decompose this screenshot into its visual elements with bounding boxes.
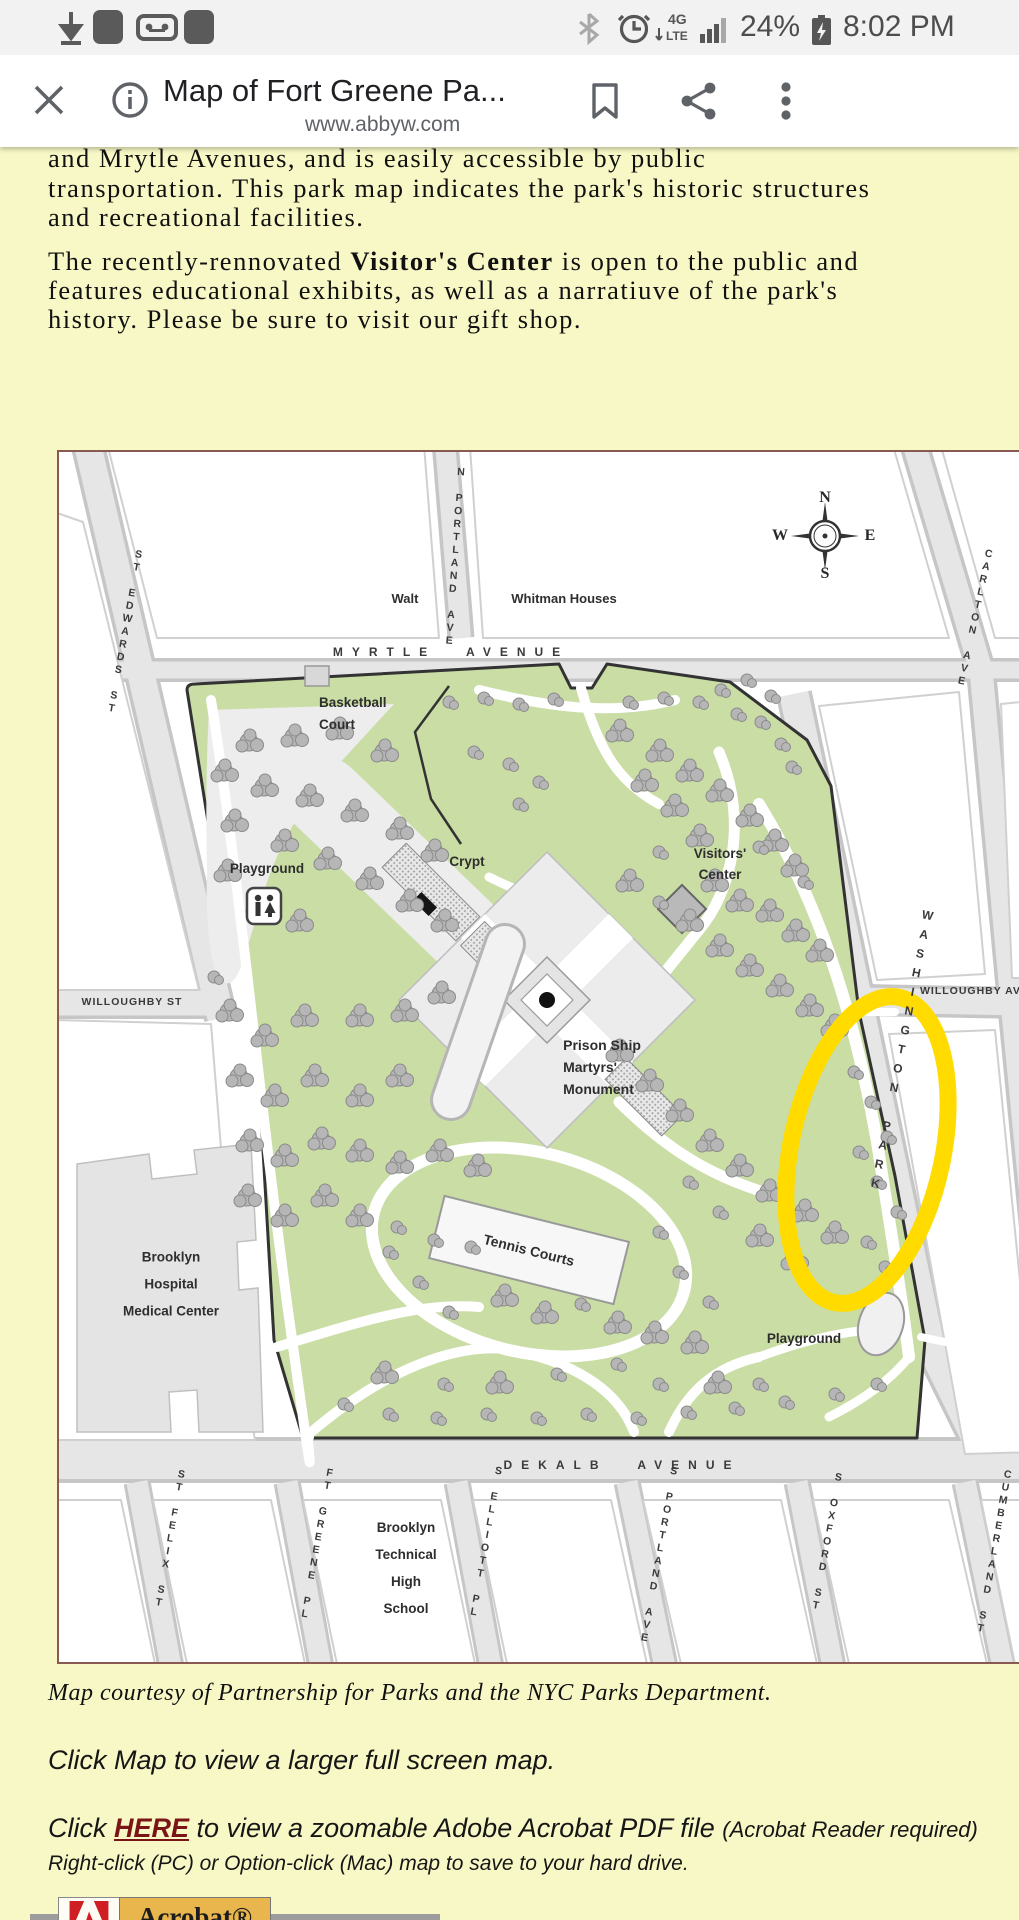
school-line3: High — [375, 1568, 436, 1595]
restroom-icon — [247, 888, 281, 924]
download-icon — [61, 12, 81, 43]
notification-square-icon — [93, 10, 123, 44]
visitors-center-bold: Visitor's Center — [350, 246, 553, 276]
svg-text:LTE: LTE — [666, 29, 688, 43]
adobe-logo-icon — [58, 1897, 119, 1920]
label-whitman-houses: Whitman Houses — [511, 588, 616, 610]
click-here-caption: Click HERE to view a zoomable Adobe Acro… — [48, 1813, 978, 1844]
here-pre: Click — [48, 1813, 114, 1843]
school-line4: School — [375, 1595, 436, 1622]
acrobat-wordmark: Acrobat® — [119, 1897, 271, 1920]
right-click-caption: Right-click (PC) or Option-click (Mac) m… — [48, 1852, 689, 1876]
paragraph1-line2: transportation. This park map indicates … — [48, 173, 870, 204]
street-willoughby-ave: WILLOUGHBY AVE — [920, 985, 1019, 997]
clock-time: 8:02 PM — [843, 10, 955, 44]
hospital-line1: Brooklyn — [123, 1244, 219, 1271]
browser-header: Map of Fort Greene Pa... www.abbyw.com — [0, 55, 1019, 147]
basketball-line2: Court — [319, 714, 387, 736]
visitors-line2: Center — [694, 864, 746, 885]
phone-screen: 4G LTE 24% 8:02 PM — [0, 0, 1019, 1920]
page-url: www.abbyw.com — [305, 113, 460, 137]
battery-percent: 24% — [740, 10, 800, 44]
hospital-line2: Hospital — [123, 1271, 219, 1298]
page-title: Map of Fort Greene Pa... — [163, 73, 506, 109]
visitors-line1: Visitors' — [694, 843, 746, 864]
hospital-line3: Medical Center — [123, 1298, 219, 1325]
school-line2: Technical — [375, 1541, 436, 1568]
monument-line1: Prison Ship — [563, 1034, 641, 1056]
label-monument: Prison Ship Martyrs' Monument — [563, 1034, 641, 1100]
monument-line3: Monument — [563, 1078, 641, 1100]
compass-s: S — [821, 565, 830, 583]
p2-post: is open to the public and — [554, 246, 859, 276]
paragraph1-line3: and recreational facilities. — [48, 202, 364, 233]
acrobat-note: (Acrobat Reader required) — [722, 1817, 978, 1842]
paragraph2-line3: history. Please be sure to visit our gif… — [48, 304, 582, 335]
label-crypt: Crypt — [449, 851, 484, 873]
here-link[interactable]: HERE — [114, 1813, 189, 1843]
compass-n: N — [819, 489, 831, 507]
click-map-caption: Click Map to view a larger full screen m… — [48, 1745, 555, 1776]
voicemail-icon — [138, 16, 176, 39]
here-post: to view a zoomable Adobe Acrobat PDF fil… — [189, 1813, 722, 1843]
web-page: and Mrytle Avenues, and is easily access… — [0, 147, 1019, 1920]
status-bar: 4G LTE 24% 8:02 PM — [0, 0, 1019, 55]
close-icon[interactable] — [32, 83, 66, 117]
label-walt: Walt — [392, 588, 419, 610]
label-playground-se: Playground — [767, 1328, 841, 1350]
svg-text:4G: 4G — [668, 11, 687, 27]
paragraph2-line1: The recently-rennovated Visitor's Center… — [48, 246, 859, 277]
bluetooth-icon — [580, 14, 597, 42]
street-myrtle: MYRTLE AVENUE — [333, 645, 569, 659]
signal-icon — [700, 18, 726, 43]
basketball-line1: Basketball — [319, 692, 387, 714]
compass-w: W — [772, 527, 788, 545]
paragraph2-line2: features educational exhibits, as well a… — [48, 275, 838, 306]
p2-pre: The recently-rennovated — [48, 246, 350, 276]
monument-line2: Martyrs' — [563, 1056, 641, 1078]
label-hospital: Brooklyn Hospital Medical Center — [123, 1244, 219, 1325]
paragraph1-line1: and Mrytle Avenues, and is easily access… — [48, 147, 706, 174]
bookmark-icon[interactable] — [589, 81, 621, 121]
street-dekalb: DEKALB AVENUE — [503, 1458, 740, 1472]
info-icon[interactable] — [110, 80, 150, 120]
school-line1: Brooklyn — [375, 1514, 436, 1541]
notification-square2-icon — [184, 10, 214, 44]
map-graphics — [59, 452, 1019, 1662]
label-playground-nw: Playground — [230, 858, 304, 880]
compass-e: E — [865, 527, 876, 545]
battery-icon — [812, 15, 831, 45]
alarm-icon — [619, 16, 649, 42]
lte-icon: 4G LTE — [656, 11, 688, 43]
street-willoughby-st: WILLOUGHBY ST — [82, 996, 183, 1008]
map-courtesy-caption: Map courtesy of Partnership for Parks an… — [48, 1680, 771, 1707]
menu-kebab-icon[interactable] — [776, 79, 796, 123]
park-map-image[interactable]: N W E S ST EDWARDS ST N PORTLAND AVE MYR… — [57, 450, 1019, 1664]
acrobat-badge[interactable]: Acrobat® — [58, 1897, 271, 1920]
label-visitors-center: Visitors' Center — [694, 843, 746, 885]
label-basketball-court: Basketball Court — [319, 692, 387, 736]
share-icon[interactable] — [678, 81, 720, 121]
label-brooklyn-tech: Brooklyn Technical High School — [375, 1514, 436, 1622]
